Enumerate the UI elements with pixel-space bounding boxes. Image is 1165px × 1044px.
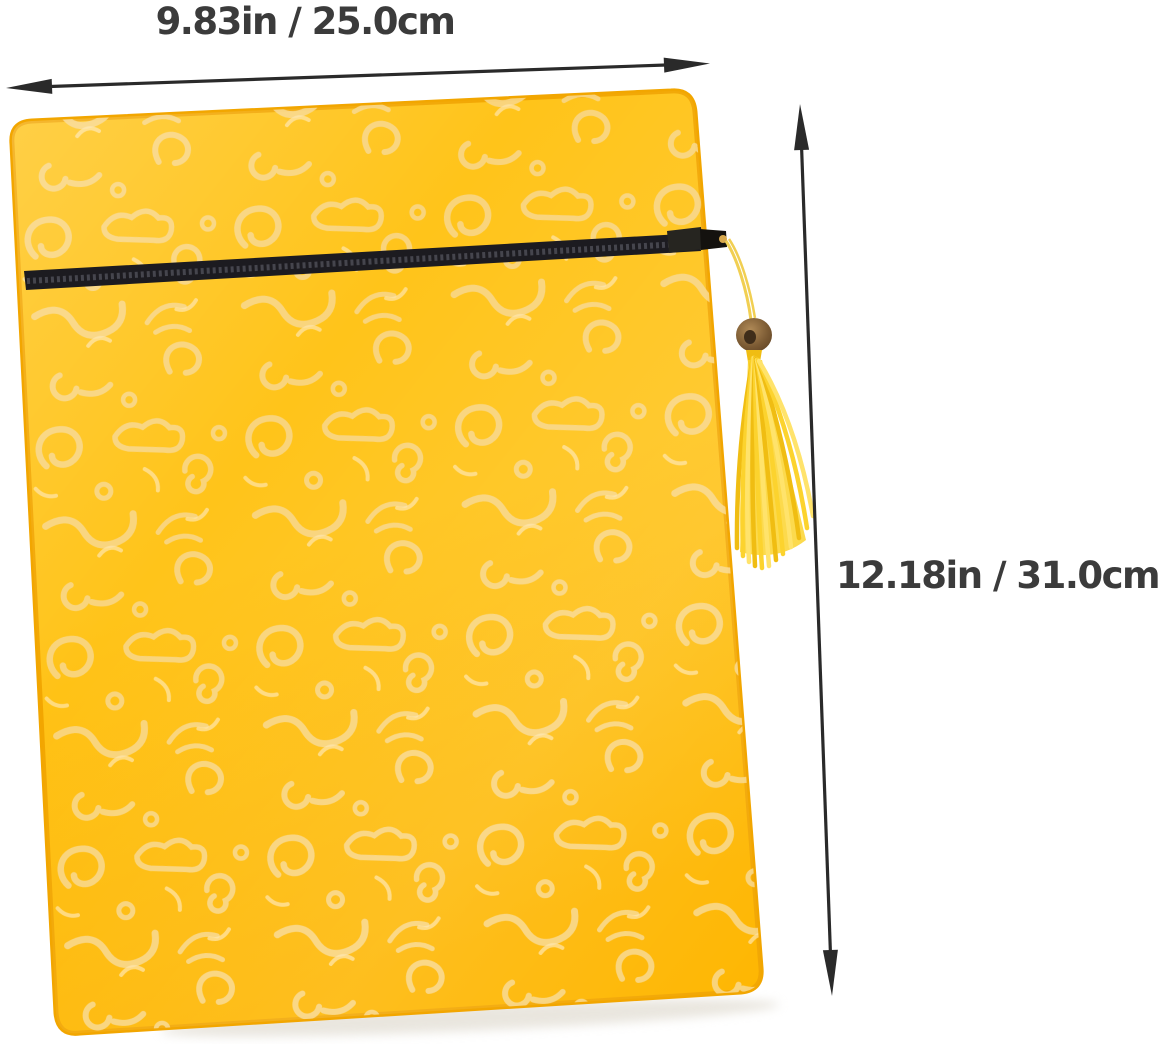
pouch-body xyxy=(12,91,761,1034)
arrowhead-right-icon xyxy=(664,58,710,73)
product-image: 9.83in / 25.0cm 12.18in / 31.0cm xyxy=(0,0,1165,1044)
arrowhead-down-icon xyxy=(823,950,838,996)
bead-hole xyxy=(744,330,756,344)
arrowhead-left-icon xyxy=(6,79,52,94)
zipper-slider xyxy=(667,227,703,253)
height-dimension-label: 12.18in / 31.0cm xyxy=(836,554,1159,597)
tassel xyxy=(726,239,813,568)
horizontal-dimension-arrow xyxy=(6,58,710,94)
width-dimension-label: 9.83in / 25.0cm xyxy=(110,0,500,43)
pouch-illustration xyxy=(0,0,1165,1044)
arrowhead-up-icon xyxy=(794,104,809,150)
pouch-sheen xyxy=(12,91,761,1034)
vertical-dimension-arrow xyxy=(794,104,838,996)
